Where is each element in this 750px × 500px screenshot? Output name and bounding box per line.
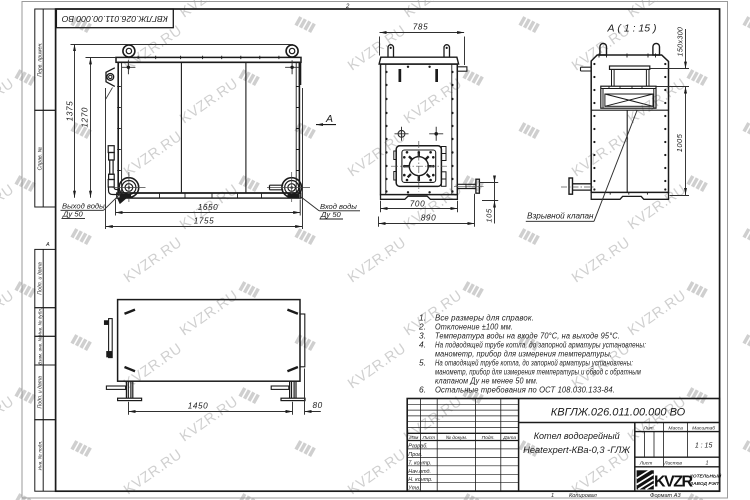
svg-text:ЗАВОД РЭП: ЗАВОД РЭП (690, 481, 719, 487)
svg-text:Листов: Листов (663, 461, 682, 467)
svg-text:Т. контр.: Т. контр. (408, 460, 431, 466)
svg-text:Котел водогрейный: Котел водогрейный (534, 431, 620, 441)
svg-text:Масса: Масса (668, 425, 683, 431)
svg-text:Н. контр.: Н. контр. (408, 477, 432, 483)
svg-text:Взам. инв. №: Взам. инв. № (37, 336, 42, 364)
svg-text:Справ. №: Справ. № (37, 146, 43, 170)
svg-text:1: 1 (706, 461, 709, 467)
svg-text:КВГЛЖ.026.011.00.000 ВО: КВГЛЖ.026.011.00.000 ВО (551, 407, 686, 419)
svg-text:Подп.: Подп. (482, 435, 495, 441)
svg-text:Перв. примен.: Перв. примен. (37, 42, 43, 76)
svg-text:№ докум.: № докум. (446, 435, 468, 441)
svg-text:А: А (45, 242, 50, 248)
svg-text:Heatexpert-КВа-0,3 -ГЛЖ: Heatexpert-КВа-0,3 -ГЛЖ (523, 445, 630, 455)
svg-text:Масштаб: Масштаб (692, 425, 715, 431)
svg-text:А: А (325, 113, 333, 125)
svg-text:785: 785 (413, 23, 428, 32)
svg-text:Подп. и дата: Подп. и дата (37, 262, 43, 295)
svg-text:1375: 1375 (66, 101, 75, 122)
svg-text:Пров.: Пров. (408, 452, 422, 458)
svg-text:Дата: Дата (502, 435, 516, 441)
svg-text:Лист: Лист (422, 435, 436, 441)
svg-text:Утв.: Утв. (407, 486, 420, 492)
svg-text:Инв. № подл.: Инв. № подл. (37, 441, 43, 471)
svg-text:80: 80 (312, 401, 322, 410)
svg-text:700: 700 (410, 199, 425, 208)
svg-text:Ду 50: Ду 50 (320, 210, 342, 219)
svg-text:Лит.: Лит. (642, 425, 654, 431)
svg-text:КВГЛЖ.026.011.00.000 ВО: КВГЛЖ.026.011.00.000 ВО (61, 14, 167, 24)
svg-text:4.: 4. (419, 339, 426, 349)
svg-text:Нач.отд.: Нач.отд. (408, 469, 431, 475)
svg-text:5.: 5. (419, 357, 426, 367)
svg-text:1270: 1270 (81, 107, 90, 128)
svg-text:Разраб.: Разраб. (408, 443, 428, 449)
svg-text:1650: 1650 (198, 203, 219, 212)
svg-text:А ( 1 : 15 ): А ( 1 : 15 ) (606, 23, 656, 35)
svg-text:150х300: 150х300 (675, 27, 684, 57)
svg-text:6.: 6. (419, 384, 426, 394)
svg-text:1755: 1755 (194, 217, 215, 226)
svg-text:105: 105 (485, 208, 494, 222)
svg-text:890: 890 (421, 214, 436, 223)
svg-text:Инв. № дубл.: Инв. № дубл. (37, 308, 42, 336)
svg-text:1005: 1005 (675, 133, 684, 152)
svg-text:1: 1 (551, 493, 554, 499)
svg-text:KVZR: KVZR (654, 474, 694, 491)
svg-text:1 : 15: 1 : 15 (695, 443, 713, 450)
svg-text:Изм: Изм (409, 435, 419, 441)
svg-text:Ду 50: Ду 50 (62, 210, 84, 219)
svg-text:Копировал: Копировал (569, 493, 598, 499)
svg-text:Подп. и дата: Подп. и дата (37, 376, 43, 409)
svg-text:Формат А3: Формат А3 (650, 493, 681, 499)
svg-text:Взрывной клапан: Взрывной клапан (527, 212, 594, 221)
svg-text:Остальные требования по ОСТ 10: Остальные требования по ОСТ 108.030.133-… (435, 384, 615, 394)
svg-text:Лист: Лист (639, 461, 653, 467)
svg-text:1450: 1450 (188, 402, 209, 411)
